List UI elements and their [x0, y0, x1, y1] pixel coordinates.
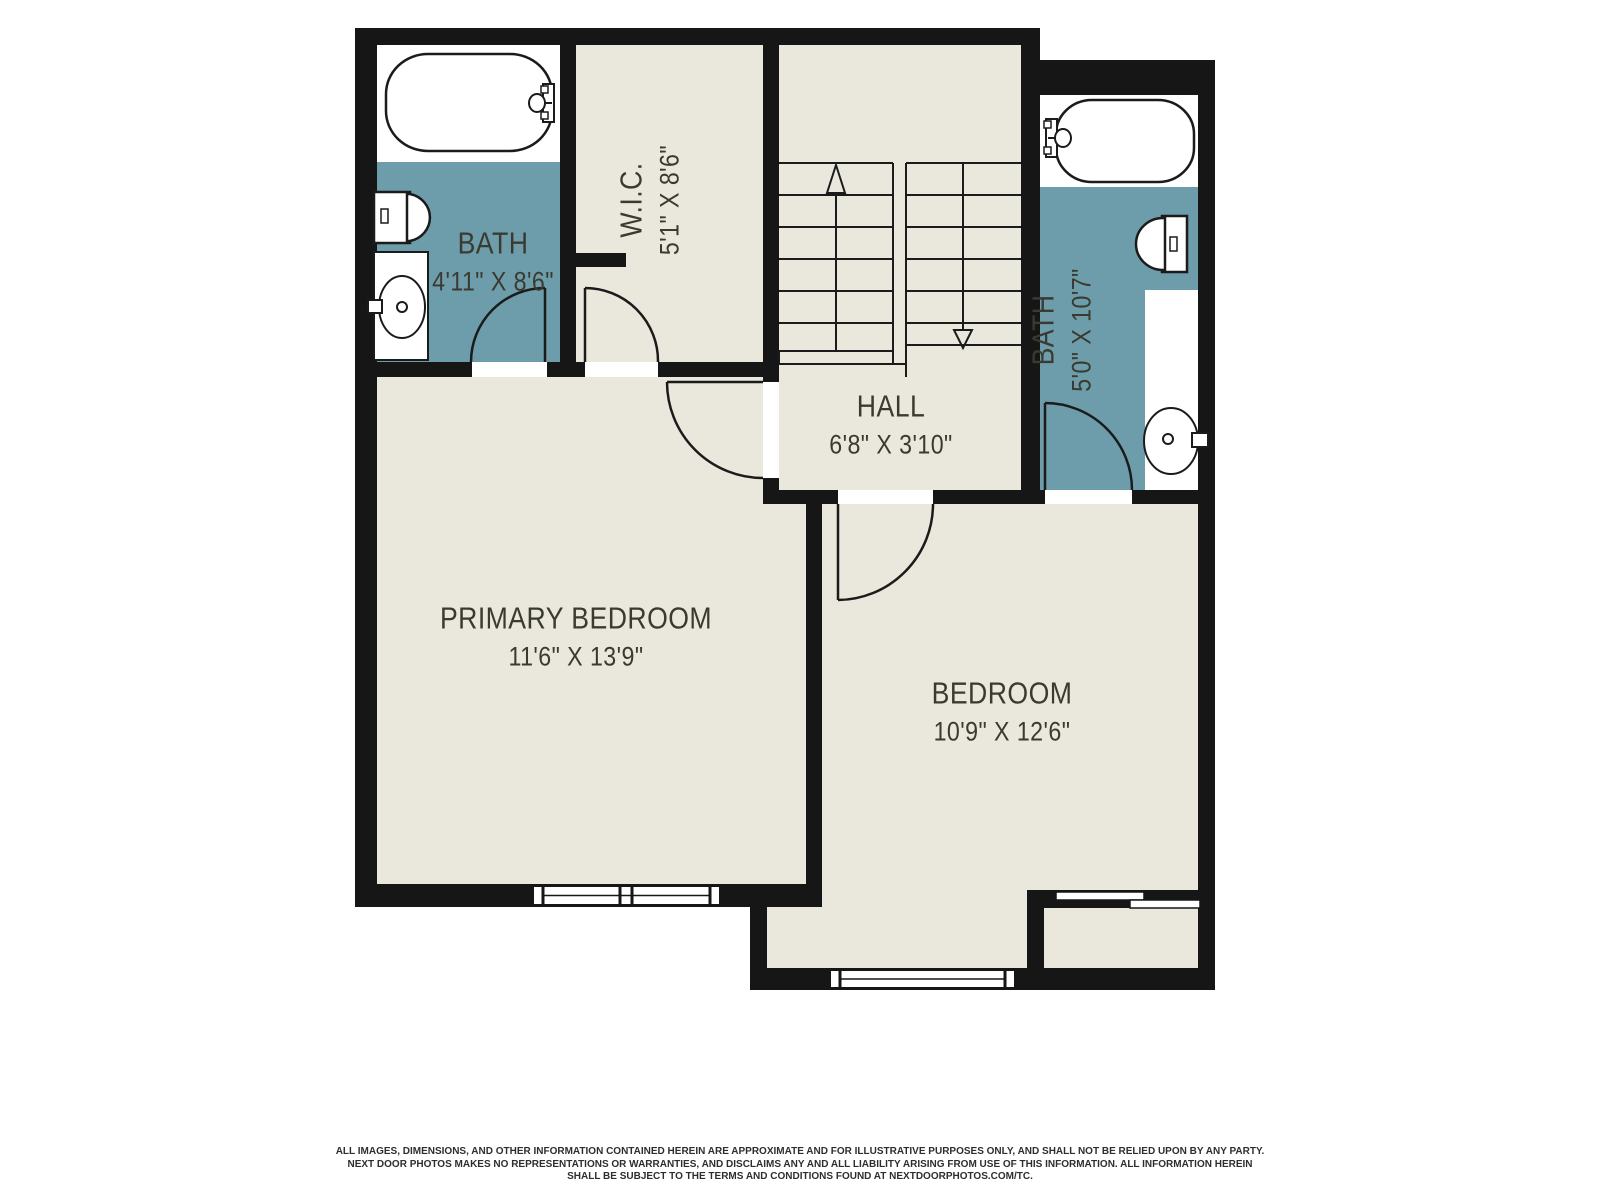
wall-wic-bottom — [377, 362, 763, 377]
wall-wic-stub — [576, 253, 626, 267]
disclaimer-line-2: NEXT DOOR PHOTOS MAKES NO REPRESENTATION… — [0, 1159, 1600, 1172]
wall-primary-bedroom — [806, 504, 822, 890]
room-dimensions: 10'9" X 12'6" — [932, 718, 1073, 748]
wall-bath-wic — [560, 45, 576, 377]
primary-bedroom-window-icon — [533, 886, 720, 905]
wall-right — [1198, 60, 1215, 990]
toilet-left-icon — [374, 192, 430, 243]
wall-top — [355, 28, 1040, 45]
bath-right-door-opening — [1045, 490, 1132, 504]
room-name: HALL — [829, 390, 952, 424]
room-name: BATH — [1027, 268, 1061, 391]
room-name: BATH — [432, 227, 554, 261]
room-dimensions: 11'6" X 13'9" — [440, 643, 712, 673]
primary-door-opening — [763, 382, 779, 478]
toilet-right-icon — [1136, 216, 1187, 272]
room-dimensions: 6'8" X 3'10" — [829, 431, 952, 461]
floor-plan-drawing — [0, 0, 1600, 1200]
disclaimer-line-3: SHALL BE SUBJECT TO THE TERMS AND CONDIT… — [0, 1171, 1600, 1184]
floor-plan: BATH 4'11" X 8'6" W.I.C. 5'1" X 8'6" HAL… — [0, 0, 1600, 1200]
bathtub-left-icon — [386, 54, 554, 151]
room-dimensions: 5'0" X 10'7" — [1068, 268, 1098, 391]
wall-hall-bath — [1021, 28, 1040, 504]
room-label-bedroom: BEDROOM 10'9" X 12'6" — [932, 677, 1073, 748]
room-dimensions: 4'11" X 8'6" — [432, 268, 554, 298]
bathtub-right-icon — [1044, 100, 1194, 182]
wall-bath-right-top — [1021, 60, 1215, 95]
wic-door-opening — [585, 362, 658, 377]
disclaimer-line-1: ALL IMAGES, DIMENSIONS, AND OTHER INFORM… — [0, 1146, 1600, 1159]
room-label-hall: HALL 6'8" X 3'10" — [829, 390, 952, 461]
bedroom-door-opening — [838, 490, 933, 504]
disclaimer-text: ALL IMAGES, DIMENSIONS, AND OTHER INFORM… — [0, 1146, 1600, 1184]
room-name: BEDROOM — [932, 677, 1073, 711]
room-dimensions: 5'1" X 8'6" — [656, 145, 686, 255]
bath-left-door-opening — [472, 362, 547, 377]
room-label-wic: W.I.C. 5'1" X 8'6" — [615, 145, 686, 255]
wall-nook-left — [1027, 890, 1044, 990]
room-label-bath-right: BATH 5'0" X 10'7" — [1027, 268, 1098, 391]
room-name: W.I.C. — [615, 145, 649, 255]
bedroom-bottom-window-icon — [830, 970, 1015, 988]
room-label-bath-left: BATH 4'11" X 8'6" — [432, 227, 554, 298]
wall-hall-bottom — [763, 490, 1215, 504]
sink-left-icon — [368, 252, 428, 360]
floor-areas — [377, 45, 1198, 968]
room-name: PRIMARY BEDROOM — [440, 602, 712, 636]
wall-left — [355, 28, 377, 907]
room-label-primary-bedroom: PRIMARY BEDROOM 11'6" X 13'9" — [440, 602, 712, 673]
